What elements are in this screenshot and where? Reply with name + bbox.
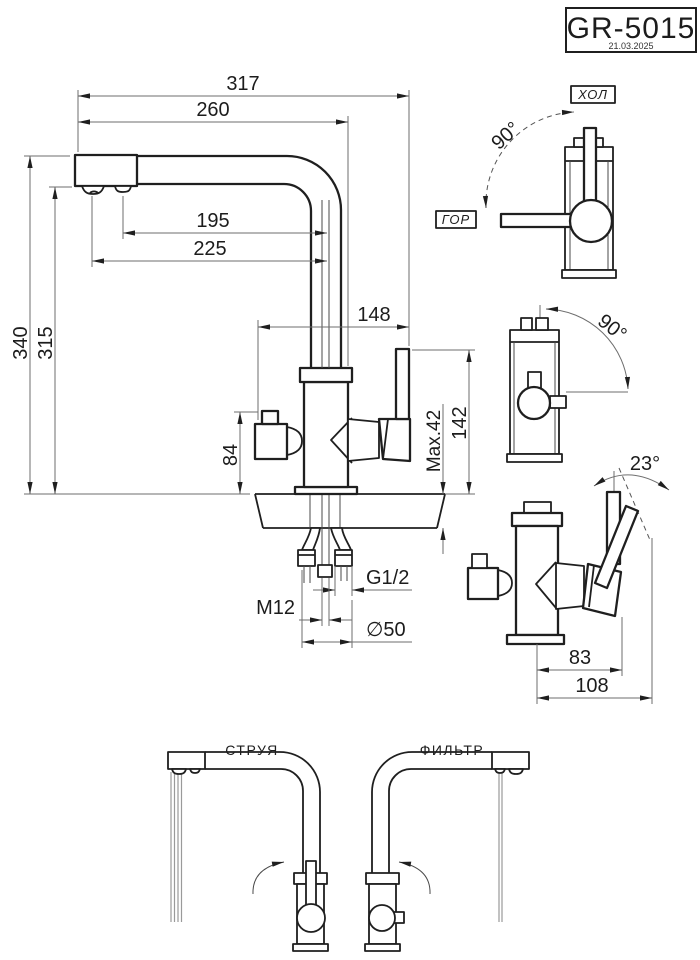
- counter-slab: [255, 494, 445, 528]
- tilt-view-collar: [512, 513, 562, 526]
- cold-label: ХОЛ: [577, 87, 608, 102]
- filter-knob-circle-bottom: [369, 905, 395, 931]
- spout-tube: [137, 156, 341, 368]
- dim-overall: 317: [226, 73, 259, 95]
- hose-fitting-right: [335, 550, 352, 566]
- drawing-date: 21.03.2025: [608, 41, 653, 51]
- dim-outlet-stream: 195: [196, 210, 229, 232]
- main-front-view: [75, 155, 445, 583]
- aerator-stream: [82, 186, 104, 194]
- dim-counter-max: Max.42: [424, 410, 445, 472]
- stream-lever: [306, 861, 316, 905]
- tilt-view-base: [507, 635, 564, 644]
- faucet-body: [304, 382, 348, 487]
- mounting-stud-end: [318, 565, 332, 577]
- filter-knob-side: [550, 396, 566, 408]
- filter-label: ФИЛЬТР: [420, 742, 485, 758]
- stream-rotate-arrow: [253, 862, 284, 894]
- faucet-dimension-drawing: 317 260 195 225 148 340 315 84 Max.42: [0, 0, 700, 960]
- angle-23: 23°: [630, 453, 660, 475]
- dim-outlet-filter: 225: [193, 238, 226, 260]
- filter-spout-head: [492, 752, 529, 769]
- stream-label: СТРУЯ: [225, 742, 278, 758]
- dim-108: 108: [575, 675, 608, 697]
- dim-stud-thread: M12: [256, 597, 295, 619]
- filter-rotate-arrow: [399, 862, 430, 894]
- supply-hoses: [298, 494, 352, 583]
- tilt-view-filter-valve: [468, 568, 498, 599]
- body-collar: [300, 368, 352, 382]
- dim-83: 83: [569, 647, 591, 669]
- view-top-rotation: ХОЛ ГОР 90°: [436, 86, 616, 278]
- valve-knob-circle: [570, 200, 612, 242]
- dim-hole-diameter: ∅50: [366, 619, 406, 641]
- dim-valve-height: 84: [220, 444, 242, 466]
- angle-90-top: 90°: [487, 118, 524, 155]
- dim-height-total: 340: [10, 326, 32, 359]
- dim-above-counter: 142: [449, 406, 471, 439]
- lever-position-cold: [584, 128, 596, 203]
- tilt-view-body: [516, 526, 558, 635]
- bottom-view-stream: СТРУЯ: [168, 742, 328, 951]
- stream-knob-circle: [297, 904, 325, 932]
- aerator-filter: [115, 186, 131, 192]
- view-filter-rotation: 90°: [507, 305, 631, 462]
- stream-spout-head: [168, 752, 205, 769]
- filter-valve-knob: [262, 411, 278, 424]
- mixer-lever-handle: [396, 349, 409, 419]
- bottom-view-filter: ФИЛЬТР: [365, 742, 529, 951]
- dim-height-outlet: 315: [35, 326, 57, 359]
- technical-drawing-page: 317 260 195 225 148 340 315 84 Max.42: [0, 0, 700, 960]
- spout-head: [75, 155, 137, 186]
- view-lever-tilt: 23° 83 108: [468, 453, 669, 704]
- dim-body-span: 148: [357, 304, 390, 326]
- dim-reach: 260: [196, 99, 229, 121]
- lever-position-hot: [501, 214, 571, 227]
- angle-90-filter: 90°: [593, 310, 630, 346]
- filter-valve: [255, 411, 302, 459]
- dim-hose-thread: G1/2: [366, 567, 409, 589]
- title-block: GR-5015 21.03.2025: [566, 8, 696, 52]
- filter-knob-circle: [518, 387, 550, 419]
- hose-fitting-left: [298, 550, 315, 566]
- hot-label: ГОР: [442, 212, 470, 227]
